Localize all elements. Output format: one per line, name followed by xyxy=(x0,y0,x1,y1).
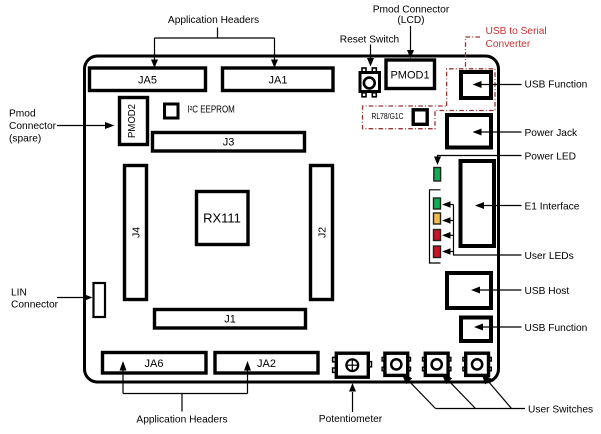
svg-text:Pmod: Pmod xyxy=(9,109,36,120)
svg-text:Potentiometer: Potentiometer xyxy=(319,414,383,425)
svg-text:Connector: Connector xyxy=(9,121,57,132)
svg-text:J3: J3 xyxy=(223,137,235,149)
svg-text:Application Headers: Application Headers xyxy=(136,415,227,426)
svg-text:Power Jack: Power Jack xyxy=(525,128,579,139)
svg-text:Connector: Connector xyxy=(11,300,59,311)
svg-text:User LEDs: User LEDs xyxy=(525,251,574,262)
svg-text:PMOD2: PMOD2 xyxy=(127,104,138,138)
svg-text:Converter: Converter xyxy=(486,39,531,50)
svg-text:RL78/G1C: RL78/G1C xyxy=(372,111,404,121)
svg-text:USB Function: USB Function xyxy=(525,80,588,91)
svg-text:User Switches: User Switches xyxy=(528,405,593,416)
svg-text:J1: J1 xyxy=(224,314,236,326)
svg-text:RX111: RX111 xyxy=(203,210,241,225)
svg-text:JA1: JA1 xyxy=(269,75,288,87)
svg-text:J4: J4 xyxy=(131,227,143,238)
svg-text:Reset Switch: Reset Switch xyxy=(340,35,399,46)
svg-text:PMOD1: PMOD1 xyxy=(390,70,429,82)
svg-text:JA6: JA6 xyxy=(145,358,164,370)
svg-text:USB Function: USB Function xyxy=(525,323,588,334)
svg-text:Application Headers: Application Headers xyxy=(168,15,259,26)
svg-text:Pmod Connector: Pmod Connector xyxy=(373,5,450,16)
svg-text:(LCD): (LCD) xyxy=(397,15,424,26)
svg-text:E1 Interface: E1 Interface xyxy=(525,202,580,213)
svg-text:LIN: LIN xyxy=(11,288,27,299)
svg-text:JA5: JA5 xyxy=(138,75,157,87)
svg-text:I²C EEPROM: I²C EEPROM xyxy=(187,104,234,115)
svg-text:(spare): (spare) xyxy=(9,134,41,145)
svg-text:Power LED: Power LED xyxy=(525,152,577,163)
svg-text:JA2: JA2 xyxy=(257,358,276,370)
svg-text:J2: J2 xyxy=(317,227,329,238)
svg-text:USB to Serial: USB to Serial xyxy=(486,26,547,37)
svg-text:USB Host: USB Host xyxy=(525,286,570,297)
